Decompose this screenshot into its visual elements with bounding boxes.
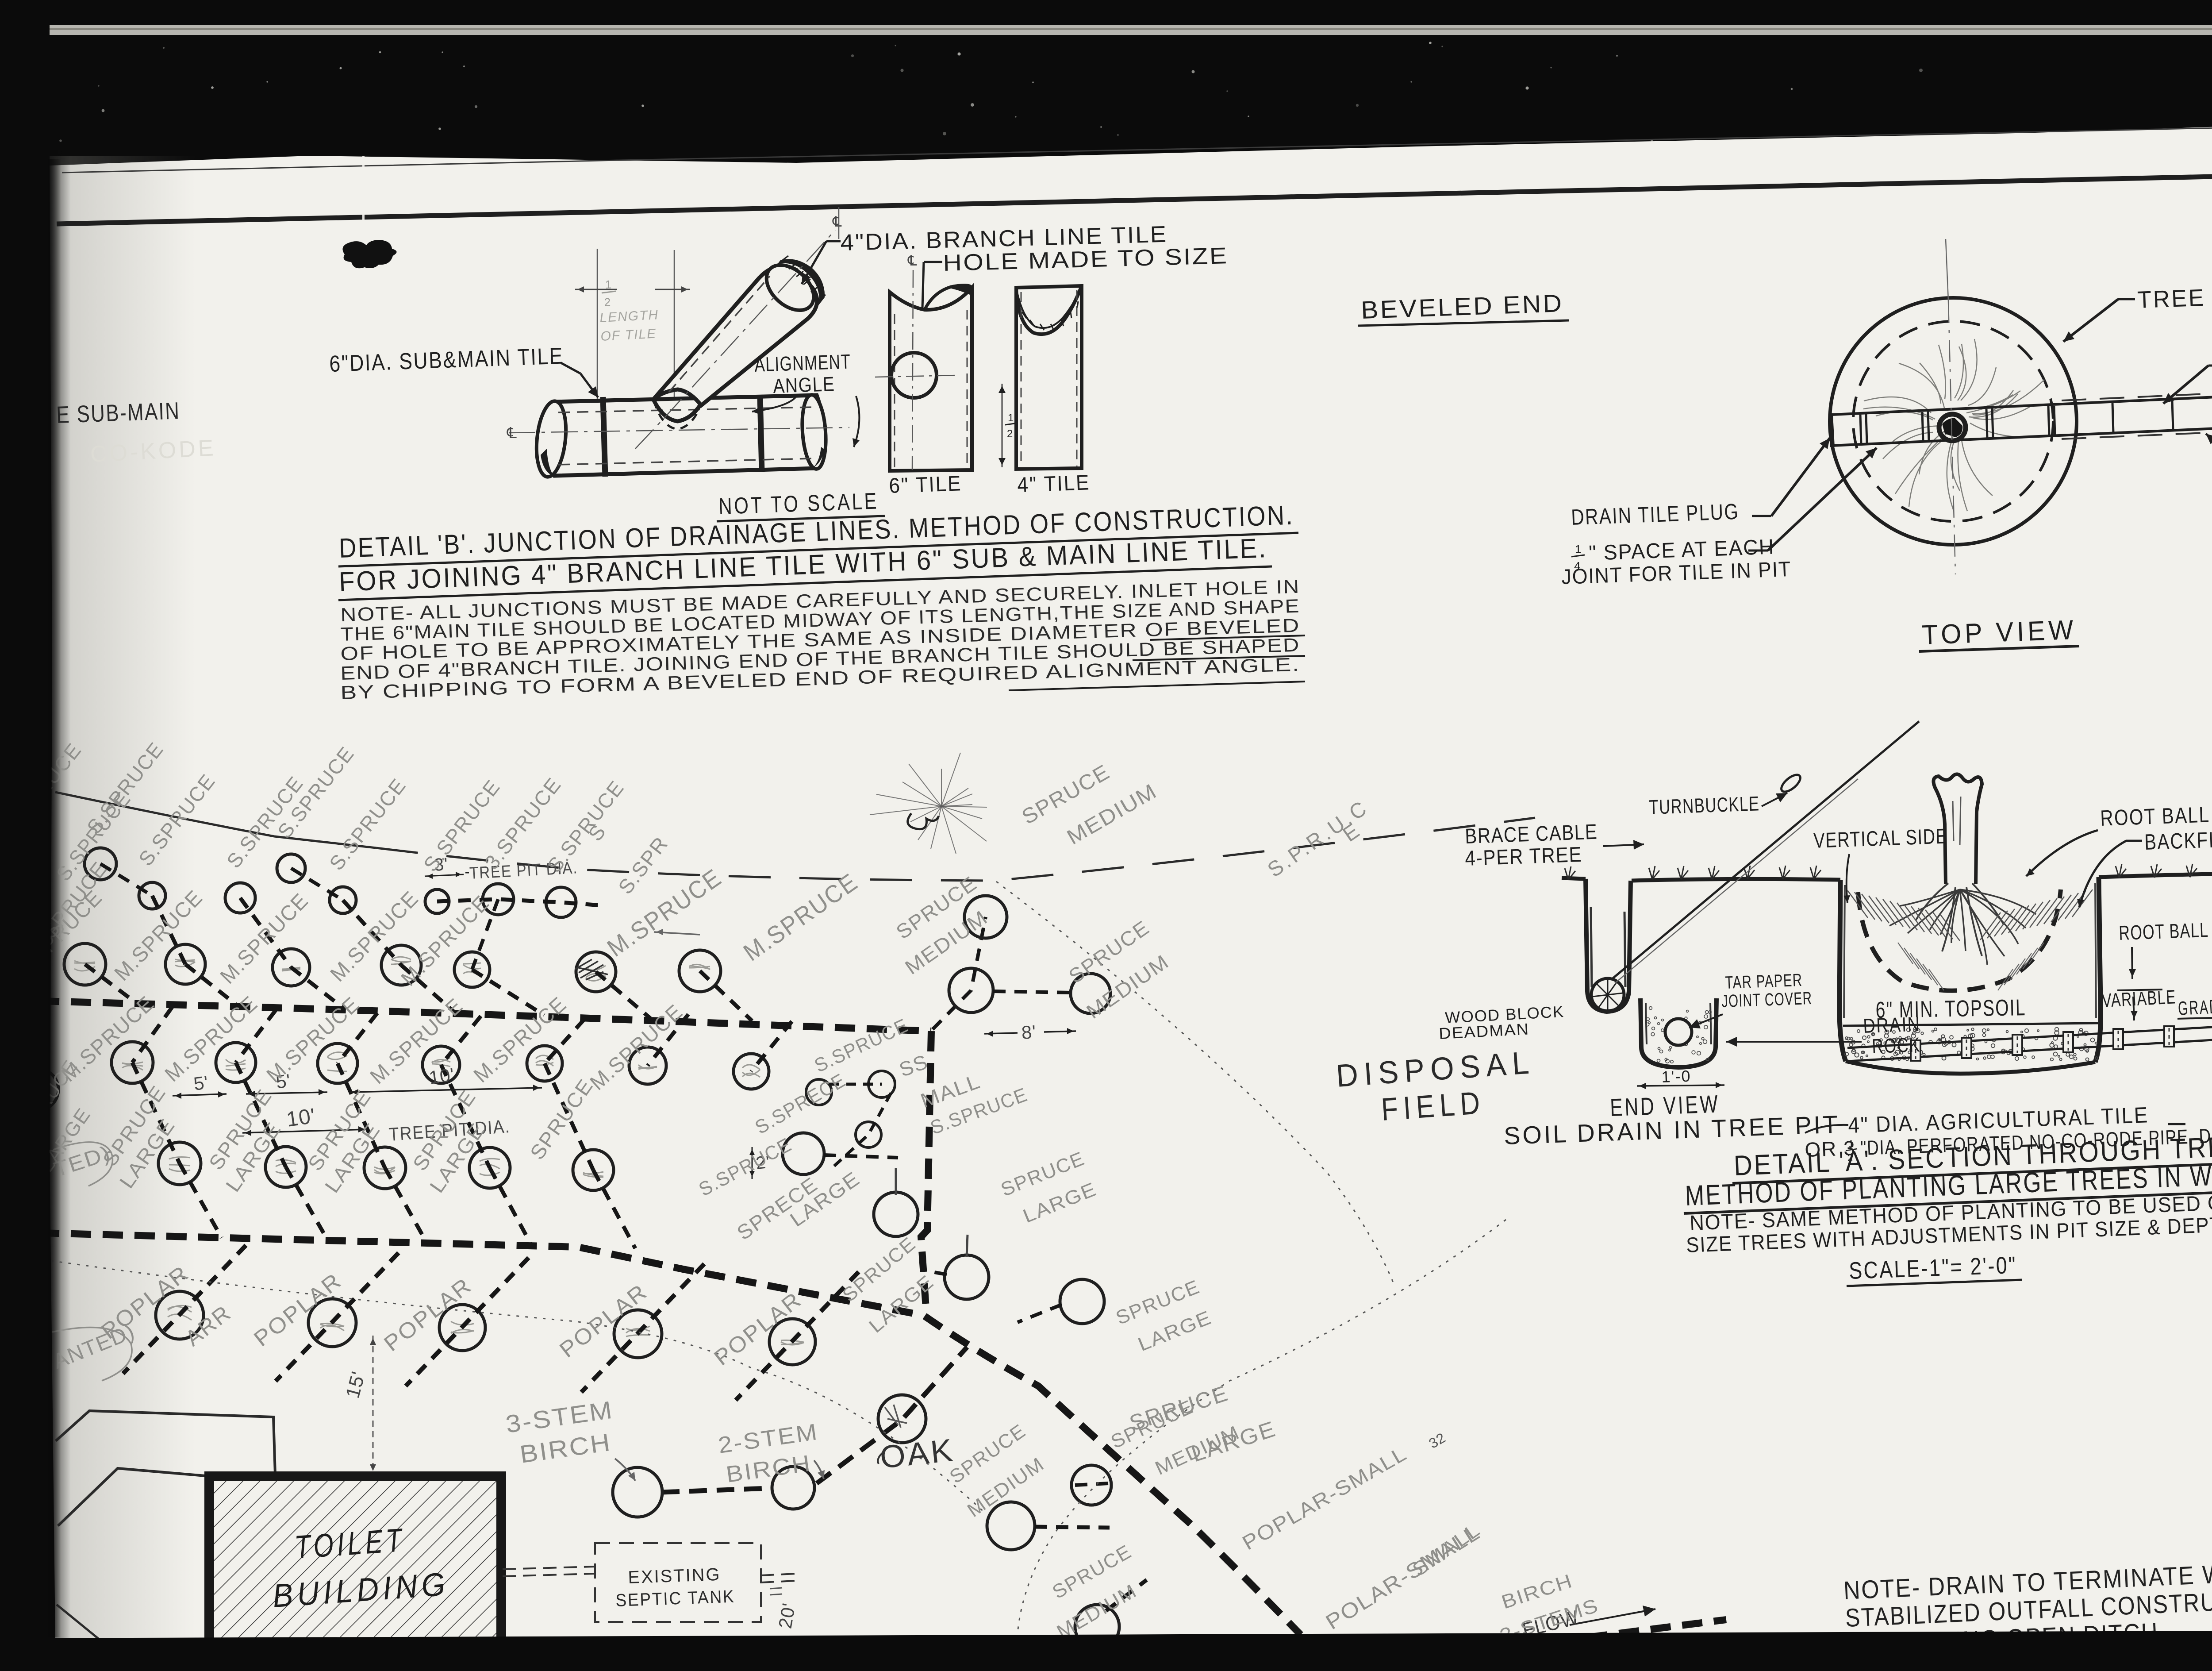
svg-text:1: 1 [1008,412,1014,424]
svg-text:VARIABLE: VARIABLE [2101,986,2177,1012]
svg-text:SEPTIC TANK: SEPTIC TANK [615,1587,735,1610]
svg-text:5': 5' [192,1072,210,1094]
svg-text:TOP VIEW: TOP VIEW [1921,615,2077,651]
svg-text:1'-0: 1'-0 [1661,1067,1691,1086]
svg-text:4-PER TREE: 4-PER TREE [1465,843,1583,870]
svg-text:℄: ℄ [832,214,842,230]
svg-text:ALIGNMENT: ALIGNMENT [754,350,852,376]
svg-text:JOINT COVER: JOINT COVER [1721,989,1813,1011]
svg-text:4" TILE: 4" TILE [1017,471,1091,497]
svg-text:20': 20' [775,1602,799,1630]
svg-text:2: 2 [1007,428,1013,440]
svg-text:LENGTH: LENGTH [599,308,659,325]
svg-text:℄: ℄ [507,425,517,442]
svg-text:ANGLE: ANGLE [773,372,836,397]
svg-text:FIELD: FIELD [1380,1085,1486,1128]
svg-text:TURNBUCKLE: TURNBUCKLE [1649,792,1760,819]
svg-text:ROCK: ROCK [1872,1033,1921,1058]
svg-text:6" TILE: 6" TILE [889,472,963,498]
svg-text:8': 8' [1021,1021,1037,1043]
svg-text:1: 1 [605,277,612,291]
svg-text:℄: ℄ [907,253,917,269]
svg-text:GRADE: GRADE [2177,995,2212,1020]
svg-text:2: 2 [604,295,611,309]
svg-text:10': 10' [428,1064,456,1088]
svg-text:OF TILE: OF TILE [600,326,657,344]
svg-text:EXISTING: EXISTING [628,1565,721,1587]
svg-text:TOILET: TOILET [293,1521,406,1566]
svg-text:E SUB-MAIN: E SUB-MAIN [56,397,180,428]
svg-text:10': 10' [285,1104,317,1132]
svg-text:ROOT BALL: ROOT BALL [2100,802,2210,831]
svg-text:1: 1 [1575,543,1582,556]
